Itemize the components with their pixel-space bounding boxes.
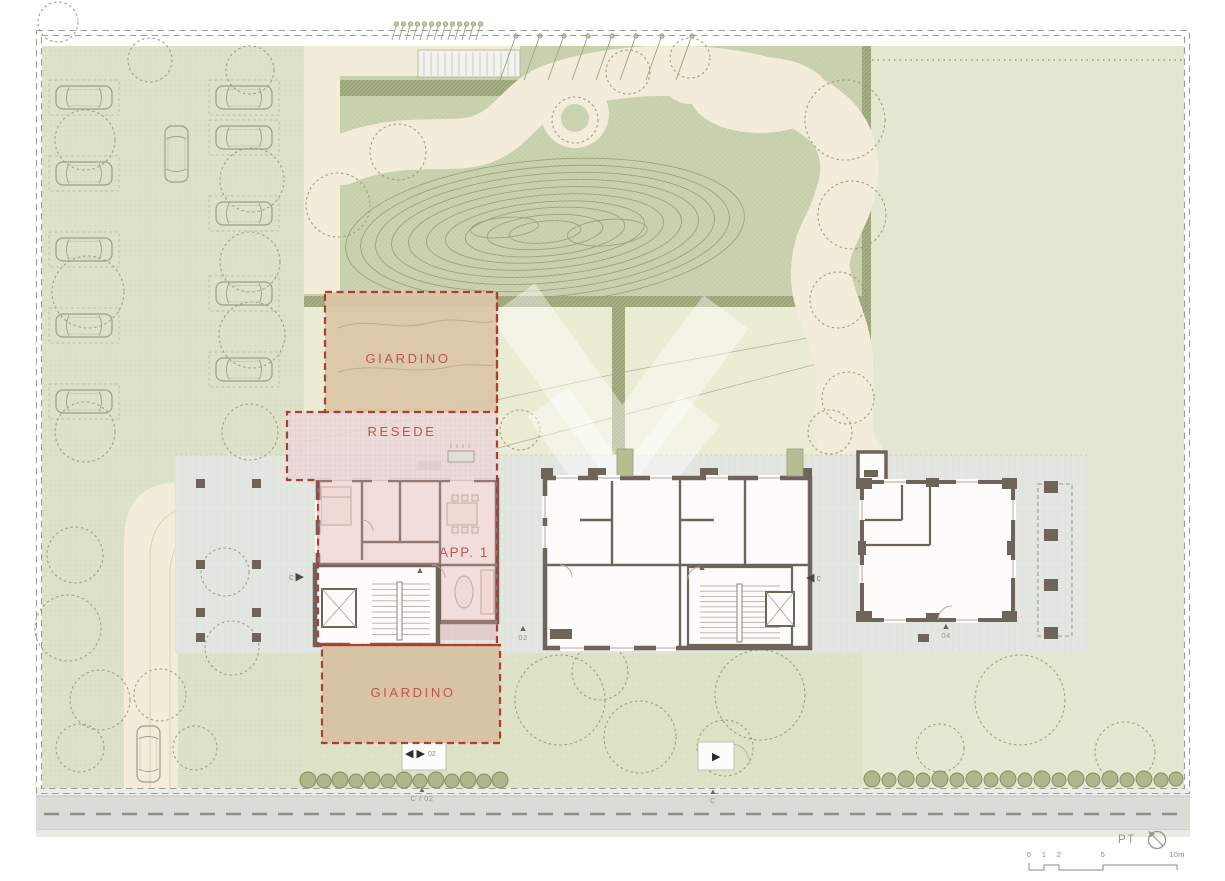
site-plan-page: GIARDINO RESEDE APP. 1 GIARDINO c ▶ ◀ c … (0, 0, 1225, 881)
site-plan-drawing (0, 0, 1225, 881)
top-shelter (418, 50, 520, 77)
road (36, 788, 1190, 837)
middle-wing (541, 449, 812, 651)
right-lawn (862, 46, 1184, 790)
